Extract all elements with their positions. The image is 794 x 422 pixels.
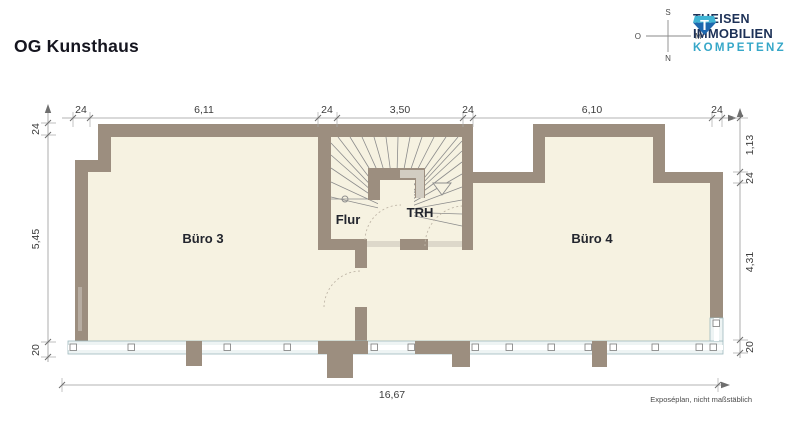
floor-passage: [462, 250, 473, 341]
wall-segment: [355, 307, 367, 341]
dim-bottom-0: 16,67: [379, 389, 405, 401]
pier: [452, 353, 470, 367]
wall-segment: [400, 239, 428, 250]
dim-right-2: 4,31: [744, 252, 756, 273]
compass-top-label: S: [665, 8, 670, 17]
dimension-chain-top: 24 6,11 24 3,50 24 6,10 24: [62, 104, 737, 127]
dim-right-1: 24: [744, 172, 756, 184]
dim-top-2: 24: [321, 104, 333, 116]
chain-arrow: [45, 104, 51, 113]
window-glass-line: [68, 345, 723, 350]
dim-top-1: 6,11: [194, 104, 214, 116]
wall-segment: [355, 250, 367, 268]
page-title: OG Kunsthaus: [14, 36, 139, 57]
dimension-chain-right: 1,13 24 4,31 20: [733, 108, 756, 358]
dim-right-3: 20: [744, 341, 756, 353]
landing-edge: [400, 170, 424, 178]
wall-segment: [462, 124, 473, 250]
compass-axes: [646, 20, 691, 52]
pier: [186, 341, 202, 366]
wall-segment: [98, 124, 473, 137]
dim-right-0: 1,13: [744, 135, 756, 156]
dim-top-0: 24: [75, 104, 87, 116]
dim-left-0: 24: [30, 123, 42, 135]
pier: [318, 341, 368, 354]
floor-plan-drawing: Büro 3 Flur TRH Büro 4 24 6,11 24 3,50 2…: [0, 0, 794, 422]
floor-plan-page: Büro 3 Flur TRH Büro 4 24 6,11 24 3,50 2…: [0, 0, 794, 422]
gem-letter: T: [700, 18, 709, 34]
room-label-flur: Flur: [336, 212, 361, 227]
company-logo: T THEISEN IMMOBILIEN KOMPETENZ: [693, 13, 787, 54]
wall-watermark: [78, 287, 82, 331]
compass-left-label: O: [635, 32, 641, 41]
compass-rose: S M N O: [635, 8, 702, 63]
dim-top-3: 3,50: [390, 104, 411, 116]
wall-segment: [533, 124, 665, 137]
scale-disclaimer: Exposéplan, nicht maßstäblich: [650, 395, 752, 404]
floor-buero4: [473, 183, 712, 341]
pier: [592, 341, 607, 367]
chain-arrow: [721, 382, 730, 388]
dim-left-2: 20: [30, 344, 42, 356]
door-threshold-flur: [367, 241, 400, 247]
gem-icon: T: [693, 13, 716, 36]
dimension-chain-left: 24 5,45 20: [30, 104, 56, 362]
dim-left-1: 5,45: [30, 229, 42, 250]
logo-line3: KOMPETENZ: [693, 42, 787, 54]
wall-segment: [653, 172, 712, 183]
room-label-trh: TRH: [407, 205, 434, 220]
room-label-buero3: Büro 3: [182, 231, 223, 246]
dim-top-5: 6,10: [582, 104, 603, 116]
dim-top-4: 24: [462, 104, 474, 116]
compass-bottom-label: N: [665, 54, 671, 63]
wall-segment: [318, 137, 331, 250]
wall-segment: [710, 172, 723, 318]
landing-edge: [416, 178, 424, 198]
dimension-chain-bottom: 16,67: [59, 378, 730, 401]
wall-segment: [318, 239, 367, 250]
chain-arrow: [737, 108, 743, 117]
pier: [327, 353, 353, 378]
exterior-notch-patch: [88, 137, 98, 160]
floor-buero4-bay: [545, 137, 653, 183]
pier: [415, 341, 470, 354]
door-threshold-trh: [428, 241, 462, 247]
stair-core-wall: [368, 168, 380, 200]
dim-top-6: 24: [711, 104, 723, 116]
room-label-buero4: Büro 4: [571, 231, 613, 246]
